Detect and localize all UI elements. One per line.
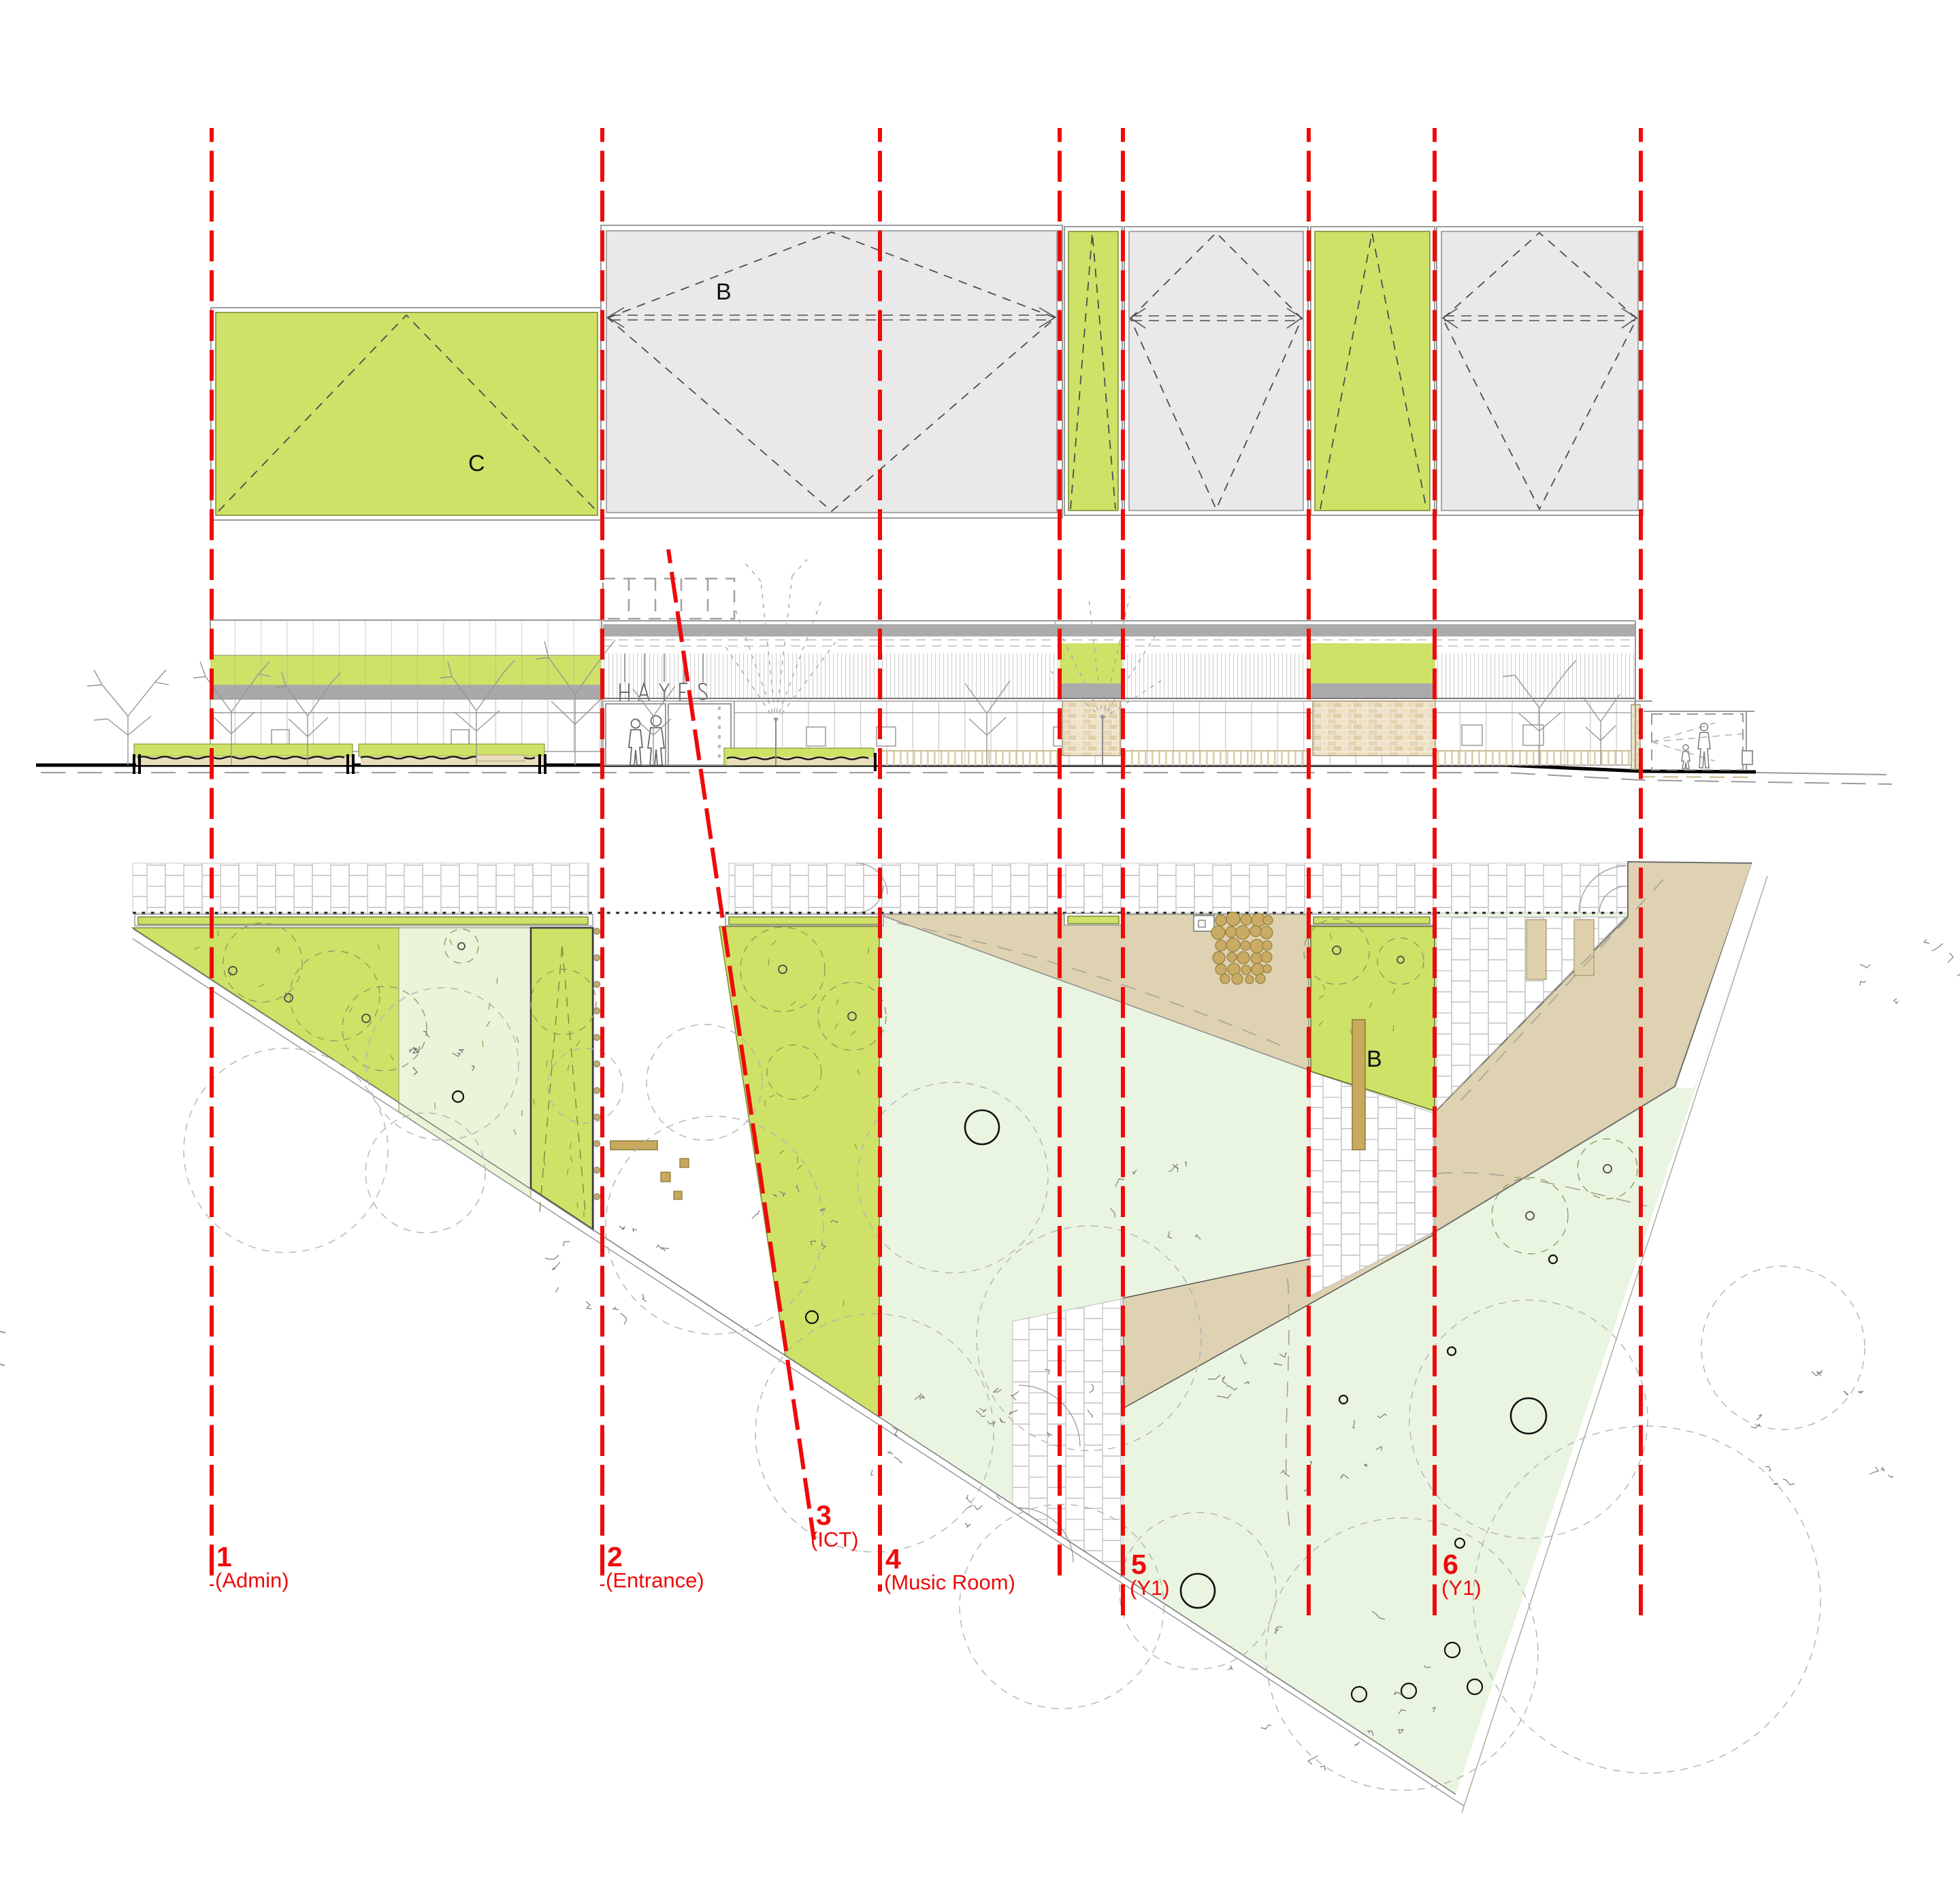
svg-text:(Entrance): (Entrance): [606, 1568, 704, 1592]
svg-text:C: C: [468, 451, 485, 476]
svg-text:(Y1): (Y1): [1130, 1576, 1170, 1600]
svg-text:3: 3: [816, 1500, 832, 1531]
svg-text:B: B: [1367, 1046, 1382, 1072]
svg-text:(ICT): (ICT): [811, 1528, 859, 1551]
svg-text:B: B: [716, 279, 732, 305]
svg-text:(Y1): (Y1): [1441, 1576, 1482, 1600]
svg-text:(Music Room): (Music Room): [884, 1570, 1015, 1594]
svg-text:(Admin): (Admin): [215, 1568, 289, 1592]
